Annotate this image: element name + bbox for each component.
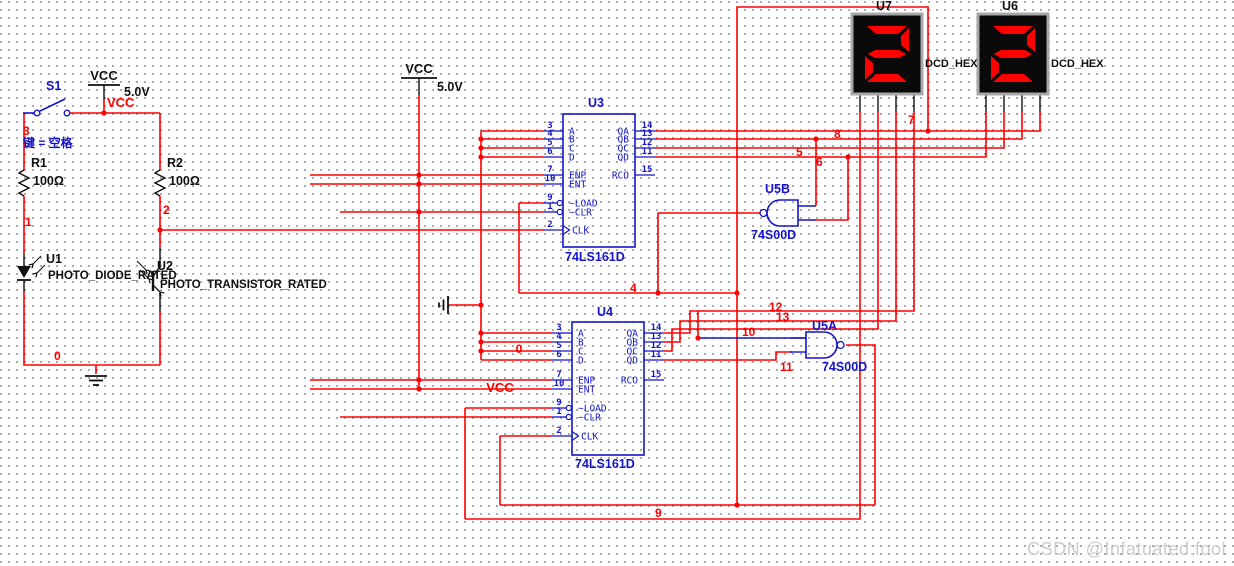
ground-mid-icon[interactable] <box>439 296 448 314</box>
r1-ref: R1 <box>31 156 47 170</box>
pin-label: D <box>569 153 575 164</box>
pin-label: QD <box>627 356 639 367</box>
u2-ref: U2 <box>157 259 173 273</box>
net-8: 8 <box>834 127 841 141</box>
wire-red[interactable] <box>664 352 792 360</box>
switch-lever <box>40 99 65 111</box>
diode-triangle-icon <box>17 266 31 278</box>
csdn-watermark: CSDN @Infatuated:fool <box>1027 539 1226 560</box>
net-5: 5 <box>796 145 803 159</box>
schematic-canvas[interactable]: 3A4B5C6D7ENP10ENT9~LOAD1~CLR2CLK14QA13QB… <box>0 0 1234 566</box>
pin-number: 2 <box>556 426 561 436</box>
pin-label: CLK <box>572 226 589 237</box>
net-10: 10 <box>742 325 756 339</box>
junction-dot-icon <box>416 386 421 391</box>
u2-part: PHOTO_TRANSISTOR_RATED <box>160 279 327 291</box>
nand-gate-body[interactable] <box>767 200 798 226</box>
junction-dot-icon <box>734 290 739 295</box>
light-arrow-icon <box>137 261 146 270</box>
display-U6[interactable] <box>978 14 1048 94</box>
junction-dot-icon <box>655 290 660 295</box>
junction-dot-icon <box>478 136 483 141</box>
pin-number: 10 <box>545 174 556 184</box>
vcc2-title: VCC <box>405 61 433 76</box>
nand-bubble-icon <box>837 342 844 349</box>
pin-number: 2 <box>547 220 552 230</box>
arrow-head-icon <box>160 292 164 296</box>
nand-bubble-icon <box>760 210 767 217</box>
light-arrow-icon <box>37 265 45 273</box>
junction-dot-icon <box>813 136 818 141</box>
u5a-ref: U5A <box>812 319 837 333</box>
pin-number: 6 <box>556 350 561 360</box>
chip-U3[interactable] <box>543 114 655 247</box>
resistor-R1[interactable] <box>19 170 29 196</box>
net-7: 7 <box>908 113 915 127</box>
junction-dot-icon <box>101 110 106 115</box>
switch-key-binding: 键 = 空格 <box>22 135 74 150</box>
pin-label: ENT <box>569 180 586 191</box>
pin-number: 15 <box>651 370 662 380</box>
ground-left-icon[interactable] <box>85 376 107 385</box>
junction-dot-icon <box>478 330 483 335</box>
junction-dot-icon <box>157 227 162 232</box>
pin-number: 15 <box>642 165 653 175</box>
nand-gate-body[interactable] <box>806 332 837 358</box>
wire-red[interactable] <box>465 112 860 519</box>
wire-red[interactable] <box>655 112 986 157</box>
junction-dot-icon <box>416 172 421 177</box>
pin-number: 10 <box>554 379 565 389</box>
pin-label: ~CLR <box>569 208 592 219</box>
gate-U5B[interactable] <box>760 200 816 226</box>
gate-U5A[interactable] <box>790 332 844 358</box>
u7-part: DCD_HEX <box>925 58 978 70</box>
junction-dot-icon <box>734 502 739 507</box>
wire-red[interactable] <box>658 213 760 293</box>
u3-part: 74LS161D <box>565 250 625 264</box>
u1-ref: U1 <box>46 252 62 266</box>
photodiode-U1[interactable] <box>17 256 45 280</box>
junction-dot-icon <box>695 335 700 340</box>
net-6: 6 <box>816 155 823 169</box>
wire-red[interactable] <box>655 112 1004 148</box>
net-0-left: 0 <box>54 349 61 363</box>
active-low-bubble-icon <box>557 200 562 205</box>
switch-ref: S1 <box>46 79 61 93</box>
switch-terminal <box>64 110 70 116</box>
pin-label: ENT <box>578 385 595 396</box>
clock-wedge-icon <box>572 432 579 441</box>
pin-number: 1 <box>547 202 552 212</box>
u5b-ref: U5B <box>765 182 790 196</box>
clock-wedge-icon <box>563 226 570 235</box>
junction-dot-icon <box>478 348 483 353</box>
pin-label: RCO <box>621 376 638 387</box>
r2-ref: R2 <box>167 156 183 170</box>
active-low-bubble-icon <box>557 209 562 214</box>
r2-value: 100Ω <box>169 174 200 188</box>
junction-dot-icon <box>416 181 421 186</box>
junction-dot-icon <box>478 145 483 150</box>
u7-ref: U7 <box>876 0 892 13</box>
net-0-mid: 0 <box>516 342 523 356</box>
r1-value: 100Ω <box>33 174 64 188</box>
net-9: 9 <box>655 506 662 520</box>
u3-ref: U3 <box>588 96 604 110</box>
junction-dot-icon <box>925 128 930 133</box>
u6-ref: U6 <box>1002 0 1018 13</box>
junction-dot-icon <box>416 377 421 382</box>
segment-g-lit <box>868 50 906 58</box>
u4-ref: U4 <box>597 305 613 319</box>
pin-number: 11 <box>642 147 653 157</box>
net-2: 2 <box>163 203 170 217</box>
junction-dot-icon <box>478 154 483 159</box>
u5a-part: 74S00D <box>822 360 867 374</box>
active-low-bubble-icon <box>566 414 571 419</box>
switch-S1[interactable] <box>34 99 70 116</box>
light-arrow-icon <box>33 256 41 264</box>
net-vcc-left: VCC <box>107 95 135 110</box>
net-11: 11 <box>780 360 793 374</box>
pin-label: RCO <box>612 171 629 182</box>
chip-U4[interactable] <box>552 322 664 455</box>
wire-red[interactable] <box>655 112 1040 131</box>
switch-terminal <box>34 110 40 116</box>
circuit-schematic[interactable]: 3A4B5C6D7ENP10ENT9~LOAD1~CLR2CLK14QA13QB… <box>0 0 1234 566</box>
net-13: 13 <box>776 310 790 324</box>
vcc1-title: VCC <box>90 68 118 83</box>
arrow-head-icon <box>33 273 37 277</box>
resistor-R2[interactable] <box>155 170 165 196</box>
pin-label: ~CLR <box>578 413 601 424</box>
pin-label: QD <box>618 153 630 164</box>
junction-dot-icon <box>845 154 850 159</box>
u4-part: 74LS161D <box>575 457 635 471</box>
u5b-part: 74S00D <box>751 228 796 242</box>
net-4: 4 <box>630 281 637 295</box>
junction-dot-icon <box>478 339 483 344</box>
wire-red[interactable] <box>664 112 914 333</box>
pin-number: 1 <box>556 407 561 417</box>
pin-label: CLK <box>581 432 598 443</box>
pin-number: 11 <box>651 350 662 360</box>
active-low-bubble-icon <box>566 405 571 410</box>
pin-number: 6 <box>547 147 552 157</box>
u6-part: DCD_HEX <box>1051 58 1104 70</box>
wire-red[interactable] <box>24 292 160 365</box>
pin-label: D <box>578 356 584 367</box>
junction-dot-icon <box>416 209 421 214</box>
vcc2-value: 5.0V <box>437 80 463 94</box>
net-vcc-mid: VCC <box>486 380 514 395</box>
segment-g-lit <box>994 50 1032 58</box>
display-U7[interactable] <box>852 14 922 94</box>
net-1: 1 <box>25 215 32 229</box>
vcc-source-mid[interactable] <box>401 78 437 95</box>
junction-dot-icon <box>478 302 483 307</box>
